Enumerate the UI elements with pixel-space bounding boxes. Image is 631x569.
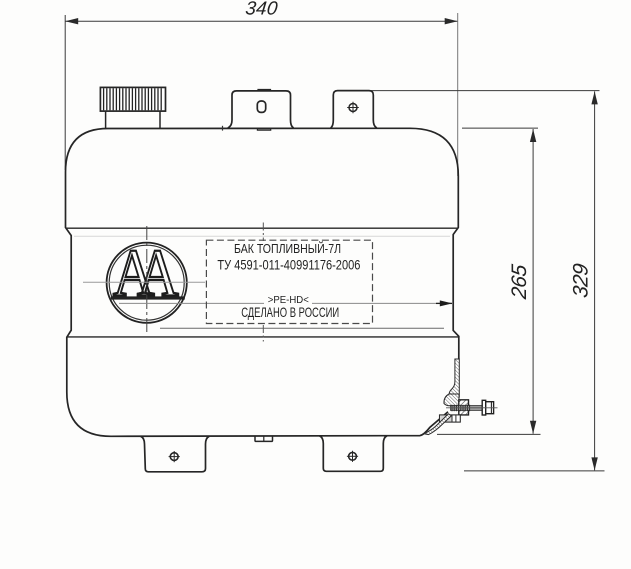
- svg-text:БАК ТОПЛИВНЫЙ-7Л: БАК ТОПЛИВНЫЙ-7Л: [234, 241, 341, 256]
- svg-text:329: 329: [570, 262, 593, 299]
- svg-text:340: 340: [244, 0, 279, 19]
- svg-text:ТУ 4591-011-40991176-2006: ТУ 4591-011-40991176-2006: [217, 257, 360, 273]
- svg-text:СДЕЛАНО В РОССИИ: СДЕЛАНО В РОССИИ: [241, 305, 339, 320]
- svg-text:265: 265: [508, 263, 531, 301]
